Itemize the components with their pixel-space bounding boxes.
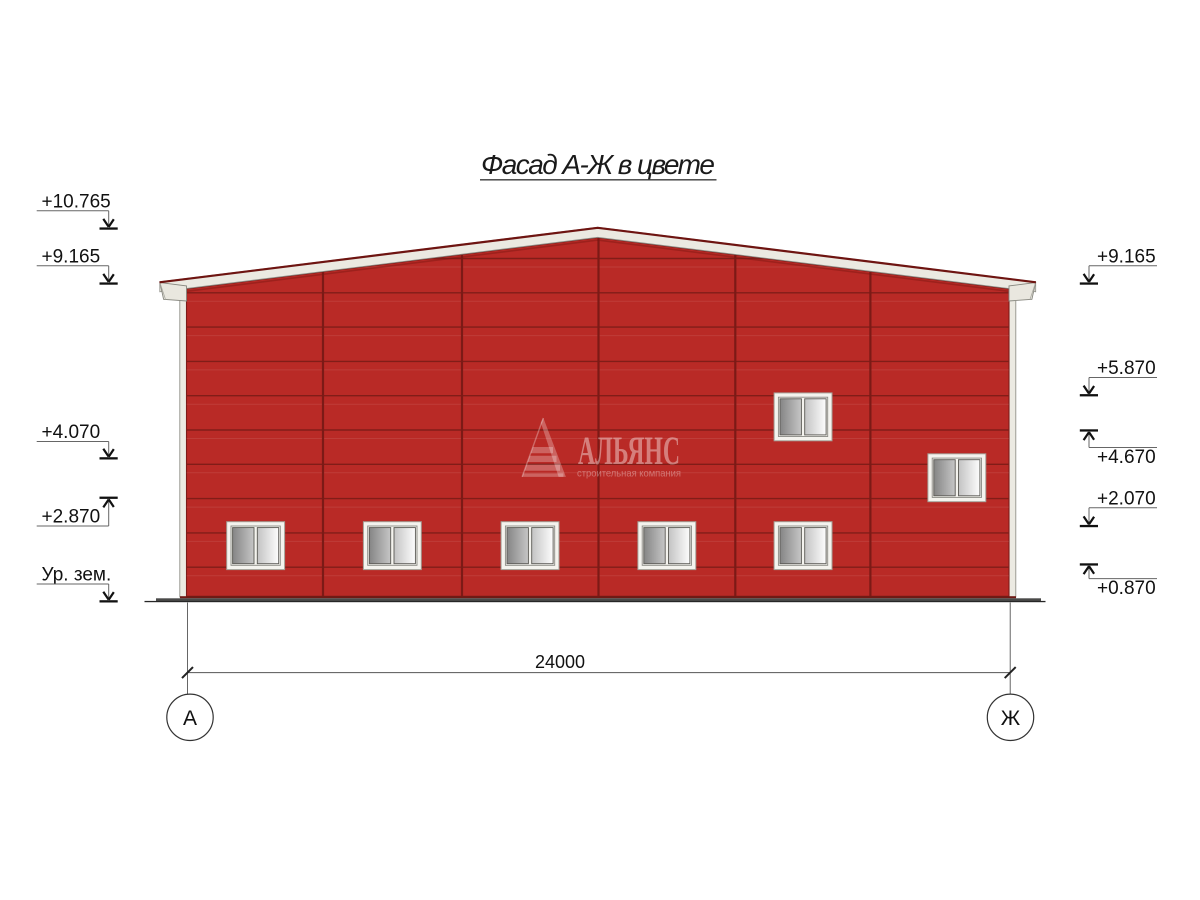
svg-text:Ур. зем.: Ур. зем. [42, 565, 112, 586]
svg-text:АЛЬЯНС: АЛЬЯНС [578, 428, 680, 473]
svg-text:+4.070: +4.070 [42, 422, 101, 443]
svg-text:строительная компания: строительная компания [577, 468, 681, 480]
svg-text:+5.870: +5.870 [1097, 358, 1156, 379]
svg-text:+0.870: +0.870 [1097, 578, 1156, 599]
svg-text:А: А [183, 707, 197, 730]
svg-text:+9.165: +9.165 [42, 247, 101, 268]
svg-text:+2.870: +2.870 [42, 507, 101, 528]
svg-text:+9.165: +9.165 [1097, 247, 1156, 268]
svg-text:24000: 24000 [535, 652, 585, 672]
svg-text:+2.070: +2.070 [1097, 488, 1156, 509]
svg-text:Ж: Ж [1001, 707, 1021, 730]
svg-text:+10.765: +10.765 [42, 192, 111, 213]
svg-text:+4.670: +4.670 [1097, 447, 1156, 468]
svg-text:Фасад А-Ж в цвете: Фасад А-Ж в цвете [481, 149, 715, 180]
